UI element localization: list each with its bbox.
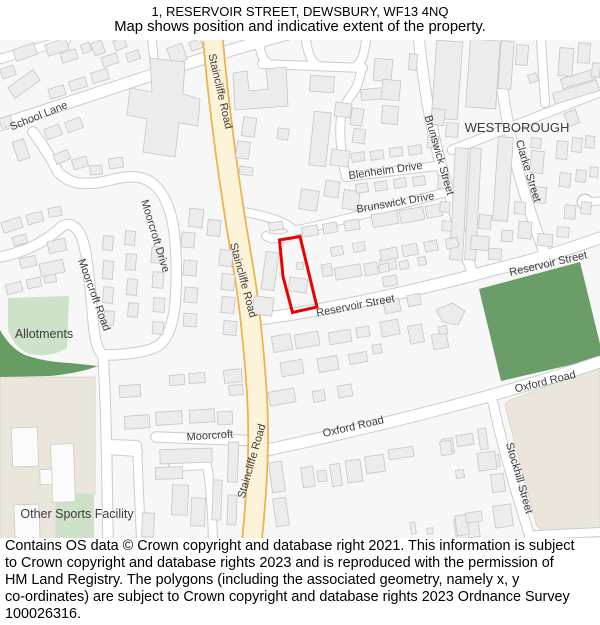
svg-text:Other Sports Facility: Other Sports Facility (20, 507, 134, 521)
svg-text:Allotments: Allotments (15, 327, 73, 341)
svg-text:WESTBOROUGH: WESTBOROUGH (465, 120, 570, 135)
